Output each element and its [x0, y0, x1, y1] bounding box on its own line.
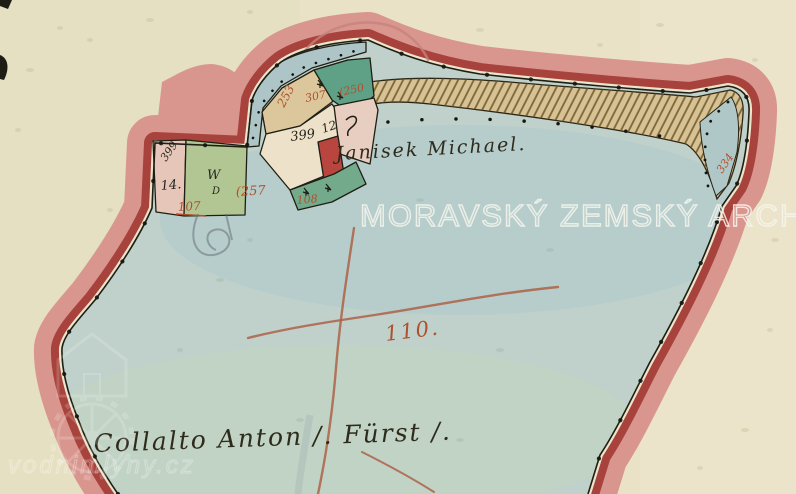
land-use-letter-w: W	[207, 168, 222, 183]
parcel-number-107: 107	[177, 199, 201, 214]
map-canvas: 334 253 307 (250 399 12 108 399 14. W D	[0, 0, 796, 494]
archive-watermark-text: MORAVSKÝ ZEMSKÝ ARCHIV V	[360, 198, 796, 233]
parcel-number-257: (257	[235, 183, 266, 200]
cadastral-map-scan: 334 253 307 (250 399 12 108 399 14. W D	[0, 0, 796, 494]
parcel-number-108: 108	[296, 192, 318, 207]
site-watermark-text: vodnimlyny.cz	[8, 452, 196, 479]
land-use-letter-d: D	[211, 186, 220, 197]
parcel-number-14: 14.	[160, 177, 182, 194]
